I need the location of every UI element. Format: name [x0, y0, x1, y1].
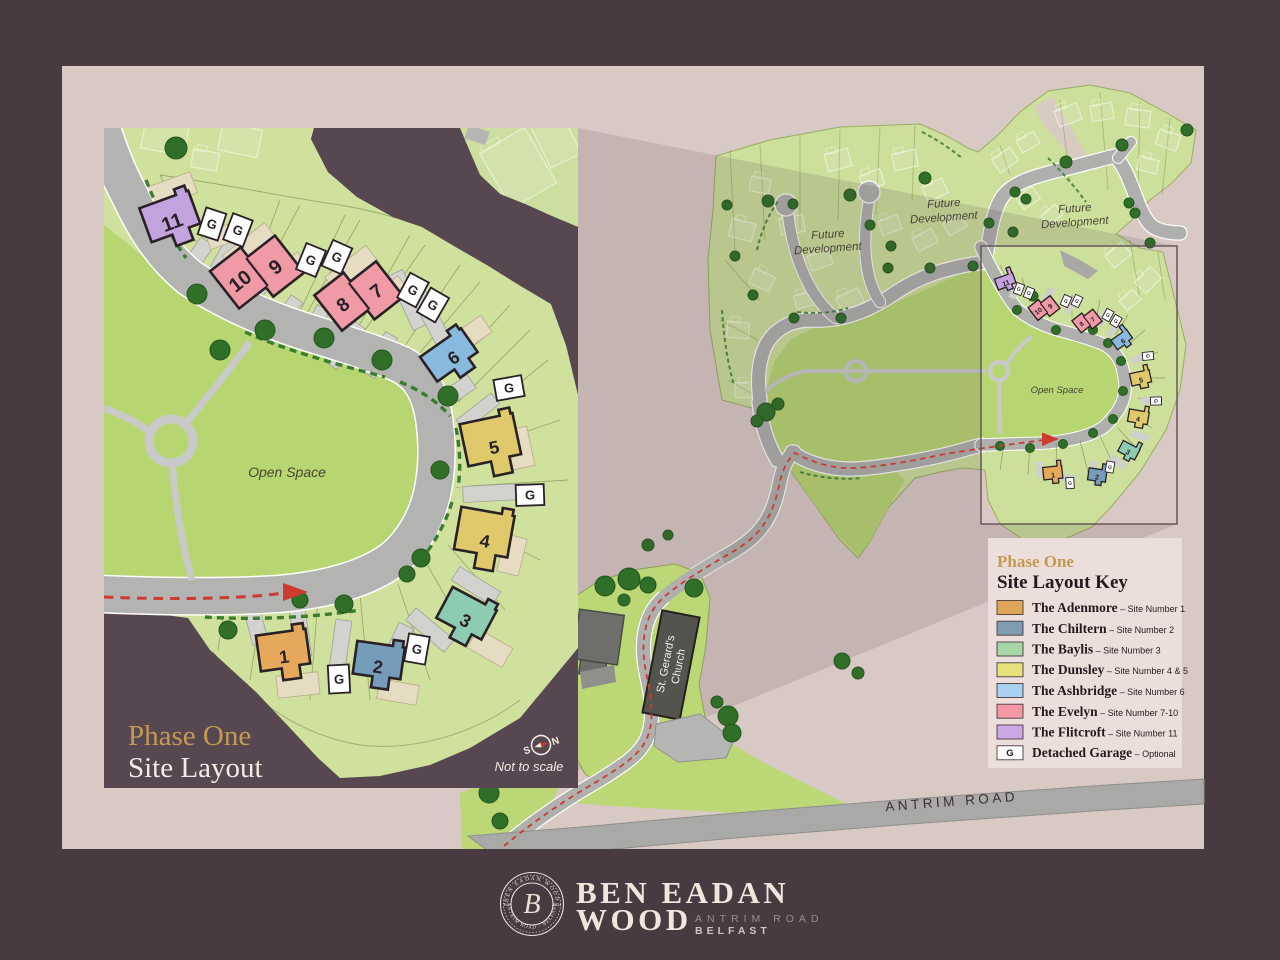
svg-text:Not to scale: Not to scale: [495, 759, 564, 774]
svg-text:Phase One: Phase One: [997, 552, 1074, 571]
svg-text:G: G: [504, 381, 514, 396]
svg-text:BELFAST: BELFAST: [695, 925, 771, 937]
svg-text:WOOD: WOOD: [576, 902, 692, 937]
svg-text:G: G: [1006, 748, 1013, 759]
svg-text:G: G: [1152, 399, 1158, 403]
svg-text:G: G: [1144, 354, 1150, 359]
svg-text:Open Space: Open Space: [248, 464, 326, 480]
svg-text:2024: 2024: [553, 902, 563, 907]
svg-text:Est.: Est.: [504, 902, 511, 907]
svg-text:G: G: [334, 671, 345, 687]
svg-text:Phase One: Phase One: [128, 720, 251, 752]
svg-text:Site Layout Key: Site Layout Key: [997, 572, 1128, 593]
svg-text:Open Space: Open Space: [1031, 385, 1084, 396]
svg-text:G: G: [1068, 481, 1072, 487]
svg-text:G: G: [525, 488, 535, 503]
svg-text:B: B: [523, 889, 540, 920]
svg-text:ANTRIM ROAD: ANTRIM ROAD: [695, 913, 824, 925]
svg-text:Site Layout: Site Layout: [128, 752, 263, 784]
